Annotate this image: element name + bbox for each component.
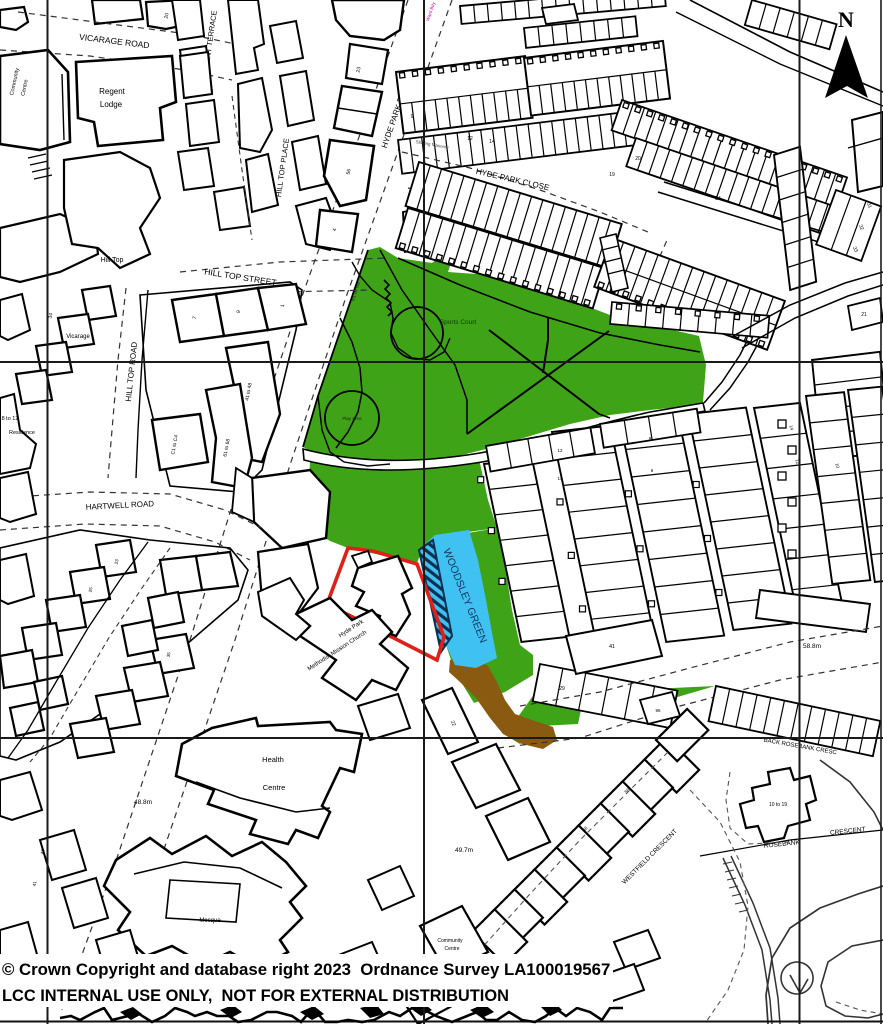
svg-text:58.8m: 58.8m: [803, 643, 821, 650]
svg-text:LCC INTERNAL USE ONLY, NOT FO: LCC INTERNAL USE ONLY, NOT FOR EXTERNAL …: [2, 987, 509, 1005]
svg-text:Hill Top: Hill Top: [101, 257, 124, 264]
svg-text:20: 20: [635, 156, 641, 162]
svg-text:49.7m: 49.7m: [455, 847, 473, 854]
svg-text:N: N: [838, 7, 854, 32]
svg-text:10 to 19: 10 to 19: [769, 802, 787, 808]
svg-text:14: 14: [557, 476, 563, 481]
svg-text:Centre: Centre: [263, 783, 286, 792]
svg-text:9: 9: [411, 114, 414, 120]
svg-text:Play Area: Play Area: [342, 416, 362, 421]
svg-text:Residence: Residence: [9, 430, 35, 436]
svg-text:21: 21: [861, 312, 867, 318]
svg-text:Community: Community: [437, 938, 463, 944]
svg-text:12: 12: [467, 136, 473, 142]
svg-text:© Crown Copyright and database: © Crown Copyright and database right 202…: [2, 960, 610, 979]
svg-text:Sports Court: Sports Court: [440, 319, 477, 326]
svg-text:Centre: Centre: [444, 946, 459, 952]
svg-text:96: 96: [655, 708, 661, 713]
svg-text:Lodge: Lodge: [100, 100, 123, 109]
svg-text:41: 41: [609, 644, 615, 650]
svg-text:19: 19: [609, 172, 615, 178]
svg-text:14: 14: [489, 139, 495, 145]
svg-text:Vicarage: Vicarage: [66, 334, 90, 340]
svg-text:Regent: Regent: [99, 87, 126, 96]
svg-text:12: 12: [557, 448, 563, 453]
svg-text:48.8m: 48.8m: [134, 799, 152, 806]
svg-text:8 to 12: 8 to 12: [2, 416, 19, 422]
svg-text:Health: Health: [262, 755, 284, 764]
svg-text:29: 29: [559, 686, 565, 692]
